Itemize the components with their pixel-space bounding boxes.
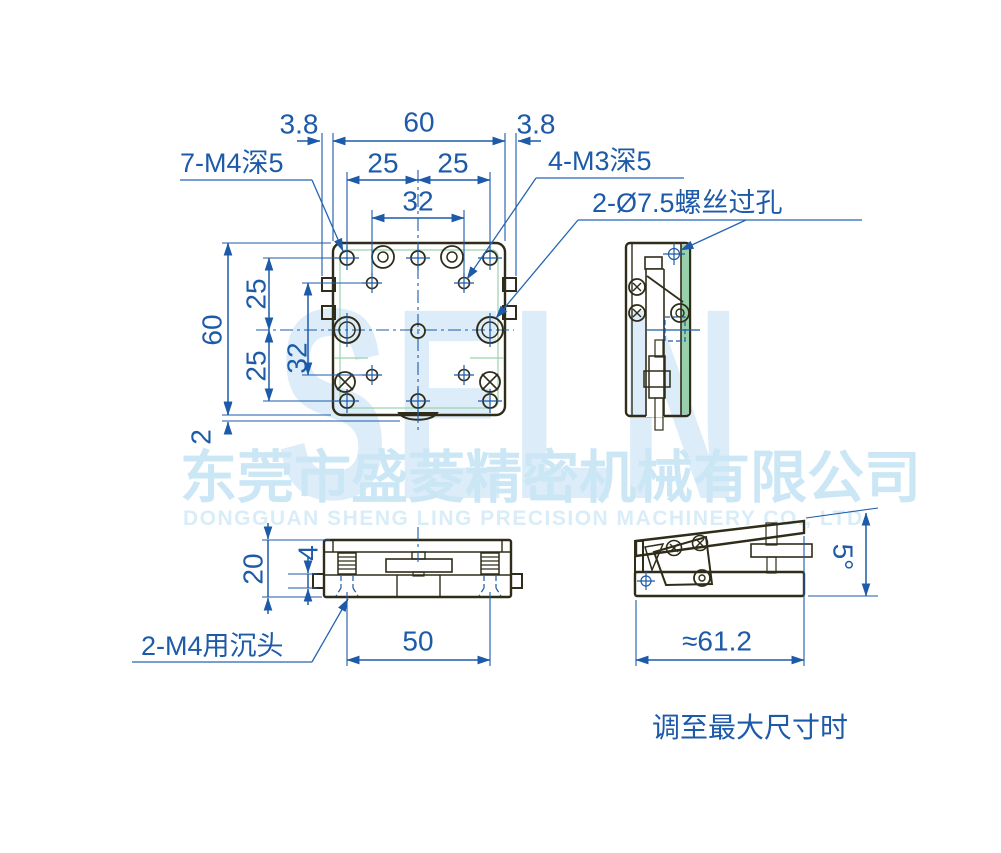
spring (338, 553, 356, 574)
label-m3-holes: 4-M3深5 (548, 146, 652, 176)
dim-v-pitch-32: 32 (282, 342, 313, 373)
dim-v-pitch-25-upper: 25 (241, 278, 272, 309)
dim-max-angle: 5° (828, 544, 859, 571)
spring (481, 553, 499, 574)
dim-tab-left: 3.8 (280, 109, 319, 140)
label-through-holes: 2-Ø7.5螺丝过孔 (592, 188, 783, 218)
technical-drawing: 3.8 60 3.8 25 25 32 60 25 25 32 2 7-M4深5… (0, 0, 1001, 853)
caption-max-size: 调至最大尺寸时 (652, 712, 848, 743)
tilt-view (635, 521, 812, 596)
base-plate (635, 572, 804, 596)
dim-v-pitch-25-lower: 25 (241, 350, 272, 381)
label-m4-holes: 7-M4深5 (180, 148, 284, 178)
dim-tab-right: 3.8 (517, 109, 556, 140)
dim-height-20: 20 (238, 553, 269, 584)
front-view (313, 527, 522, 597)
dim-pitch-32: 32 (402, 186, 433, 217)
side-tab (313, 574, 324, 588)
dim-pitch-50: 50 (402, 626, 433, 657)
plate-body (333, 243, 505, 415)
dim-max-length: ≈61.2 (682, 626, 752, 657)
labels-top-view: 7-M4深5 4-M3深5 2-Ø7.5螺丝过孔 (180, 146, 862, 318)
dim-tab-4: 4 (293, 545, 324, 561)
dim-pitch-25-right: 25 (437, 148, 468, 179)
dim-pitch-25-left: 25 (367, 148, 398, 179)
adjust-wheel (386, 552, 452, 576)
countersunk-hole-hidden (336, 576, 501, 596)
dim-width-60: 60 (403, 107, 434, 138)
side-tab (511, 574, 522, 588)
dim-height-60: 60 (197, 314, 228, 345)
drawing-sheet: SELN 东莞市盛菱精密机械有限公司 DONGGUAN SHENG LING P… (0, 0, 1001, 853)
dim-bump-2: 2 (186, 429, 217, 445)
label-countersunk: 2-M4用沉头 (141, 631, 284, 661)
dimensions-front-view: 20 4 50 2-M4用沉头 (132, 523, 490, 666)
top-view (256, 170, 516, 430)
hole-crosshair (637, 572, 655, 590)
side-view (626, 243, 700, 430)
